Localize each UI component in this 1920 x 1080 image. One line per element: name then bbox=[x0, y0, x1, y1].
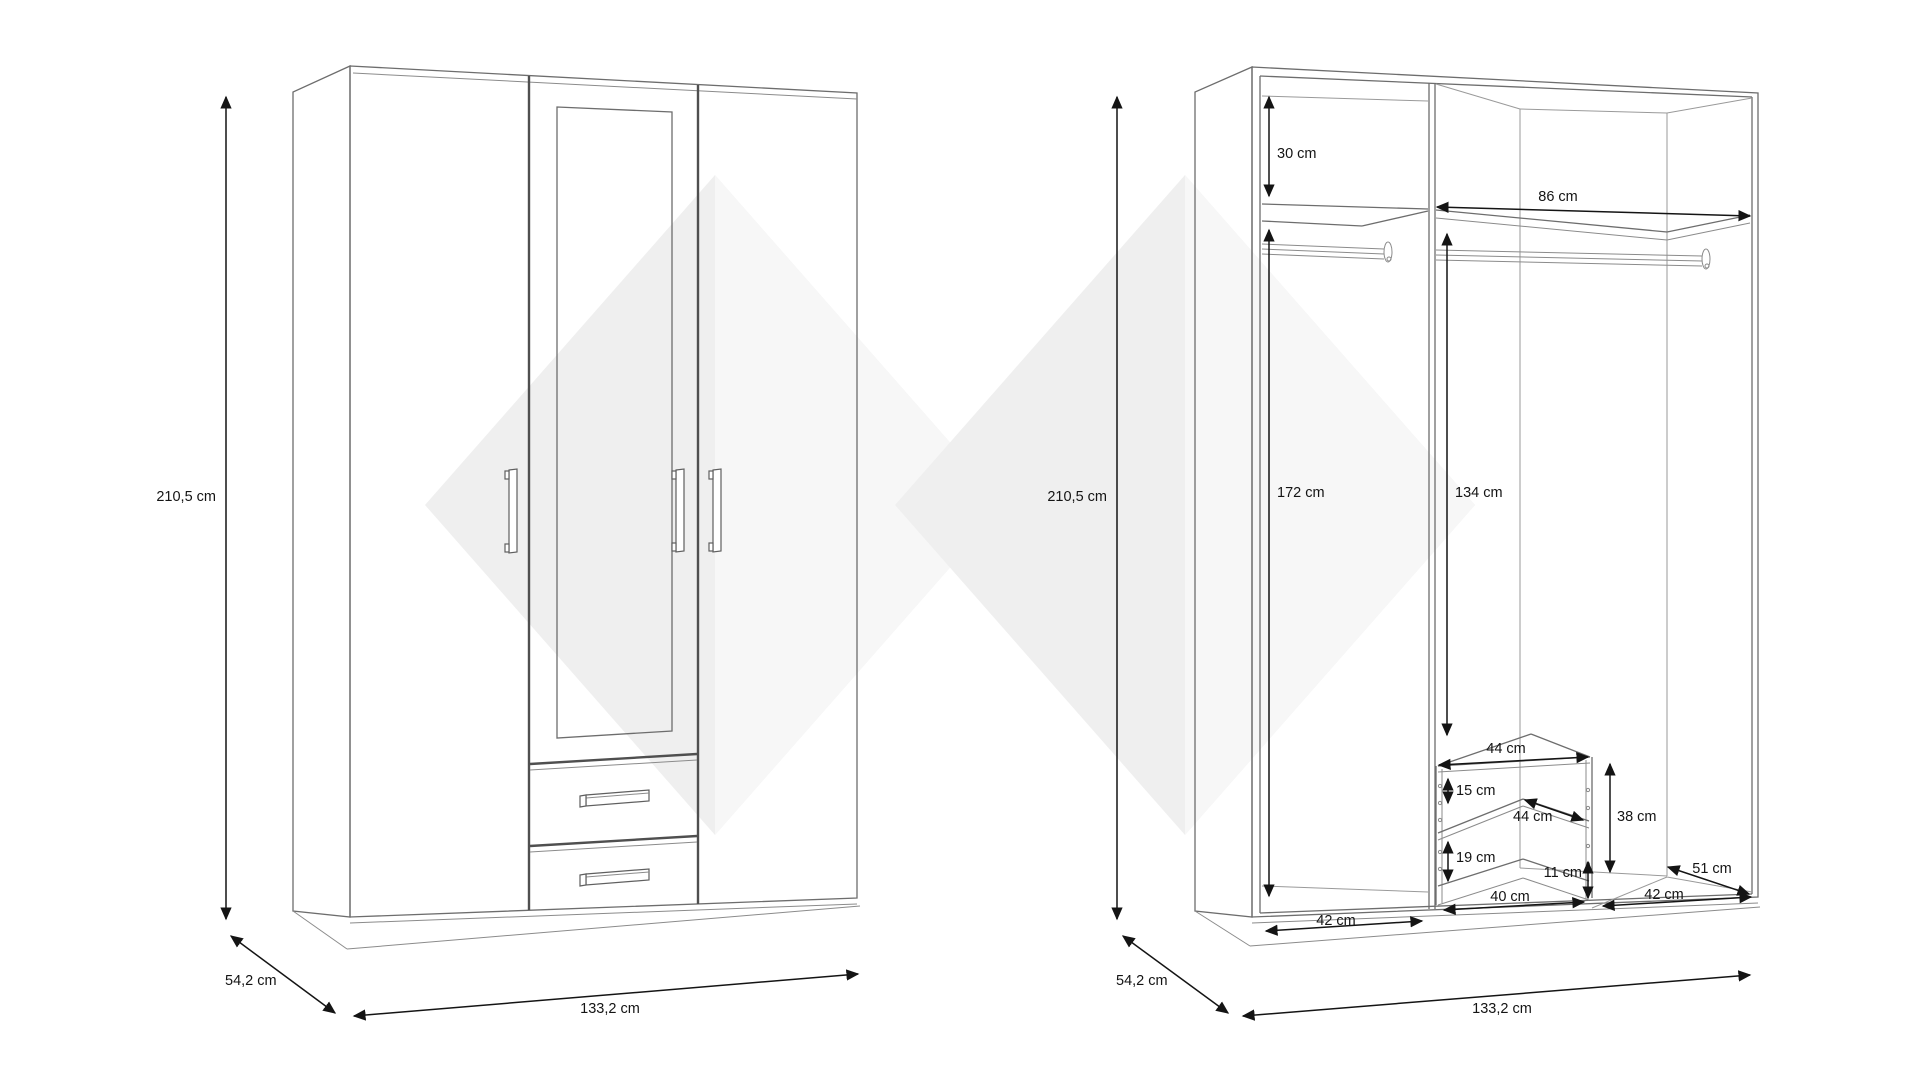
left-section-height-label: 172 cm bbox=[1277, 485, 1325, 501]
drawing-canvas: 210,5 cm 54,2 cm 133,2 cm bbox=[0, 0, 1920, 1080]
shelf-front-edge bbox=[1362, 211, 1428, 226]
fitting-hole bbox=[1586, 806, 1589, 809]
hanging-rod bbox=[1436, 255, 1702, 261]
back-top-edge bbox=[1262, 96, 1428, 101]
top-panel-edge bbox=[353, 73, 857, 99]
right-compartment bbox=[1436, 210, 1750, 269]
top-inner-edge bbox=[1260, 76, 1752, 97]
box-base-edge bbox=[1523, 878, 1589, 900]
hanging-clearance-label: 134 cm bbox=[1455, 485, 1503, 501]
right-floor-depth-label: 51 cm bbox=[1692, 861, 1732, 877]
drawer-unit-height-label: 38 cm bbox=[1617, 809, 1657, 825]
drawer-handle-cap bbox=[580, 795, 586, 807]
drawer-base-height-label: 11 cm bbox=[1544, 865, 1582, 881]
handle-cap bbox=[672, 471, 676, 479]
right-floor-width-label: 42 cm bbox=[1644, 887, 1684, 903]
door-handle bbox=[676, 469, 684, 552]
drawer-top-gap-label: 15 cm bbox=[1456, 783, 1496, 799]
hanging-rod bbox=[1436, 260, 1702, 266]
shelf-top-edge bbox=[1667, 215, 1750, 232]
fitting-hole bbox=[1438, 818, 1441, 821]
drawer-lower-gap-label: 19 cm bbox=[1456, 850, 1496, 866]
drawer-bottom-width-label: 40 cm bbox=[1490, 889, 1530, 905]
handle-cap bbox=[709, 471, 713, 479]
box-mid-shelf bbox=[1438, 799, 1523, 833]
hanging-rod bbox=[1262, 249, 1384, 254]
hanging-rod bbox=[1436, 250, 1702, 256]
base-bottom-edge bbox=[347, 906, 860, 949]
floor-back-edge bbox=[1262, 886, 1428, 892]
back-top-edge bbox=[1436, 84, 1520, 109]
height-label: 210,5 cm bbox=[1047, 489, 1107, 505]
fitting-hole bbox=[1438, 784, 1441, 787]
wardrobe-diagram: 210,5 cm 54,2 cm 133,2 cm bbox=[0, 0, 1920, 1080]
shelf-top-edge bbox=[1262, 204, 1428, 209]
box-top-edge bbox=[1531, 734, 1590, 757]
hanging-rod bbox=[1262, 244, 1384, 249]
hanging-rod bbox=[1262, 254, 1384, 259]
back-top-edge bbox=[1667, 98, 1752, 113]
left-floor-width-label: 42 cm bbox=[1316, 913, 1356, 929]
fitting-hole bbox=[1438, 867, 1441, 870]
fitting-hole bbox=[1586, 788, 1589, 791]
door-handle bbox=[713, 469, 721, 552]
drawer-handle bbox=[586, 869, 649, 885]
drawer-depth-label: 44 cm bbox=[1513, 809, 1553, 825]
handle-cap bbox=[505, 544, 509, 552]
handle-cap bbox=[505, 471, 509, 479]
width-label: 133,2 cm bbox=[580, 1001, 640, 1017]
left-compartment bbox=[1262, 204, 1428, 262]
depth-label: 54,2 cm bbox=[1116, 973, 1168, 989]
fitting-hole bbox=[1438, 801, 1441, 804]
drawer-gap-line bbox=[530, 836, 697, 846]
shelf-front-edge bbox=[1667, 223, 1750, 240]
base-left-edge bbox=[293, 911, 347, 949]
top-shelf-offset-label: 30 cm bbox=[1277, 146, 1317, 162]
fitting-hole bbox=[1438, 850, 1441, 853]
shelf-front-edge bbox=[1262, 221, 1362, 226]
handle-cap bbox=[709, 543, 713, 551]
left-side-panel bbox=[293, 66, 350, 917]
right-section-width-label: 86 cm bbox=[1538, 189, 1578, 205]
watermark-sheen-right bbox=[1185, 175, 1475, 835]
height-label: 210,5 cm bbox=[156, 489, 216, 505]
floor-back-edge bbox=[1520, 868, 1667, 876]
drawer-handle-cap bbox=[580, 874, 586, 886]
drawer-top-width-label: 44 cm bbox=[1486, 741, 1526, 757]
width-label: 133,2 cm bbox=[1472, 1001, 1532, 1017]
drawer-handles bbox=[580, 790, 649, 886]
back-top-edge bbox=[1520, 109, 1667, 113]
door-handle bbox=[509, 469, 517, 553]
drawer-handle bbox=[586, 790, 649, 806]
fitting-hole bbox=[1586, 844, 1589, 847]
handle-cap bbox=[672, 543, 676, 551]
depth-label: 54,2 cm bbox=[225, 973, 277, 989]
box-mid-shelf-thickness bbox=[1438, 806, 1523, 840]
